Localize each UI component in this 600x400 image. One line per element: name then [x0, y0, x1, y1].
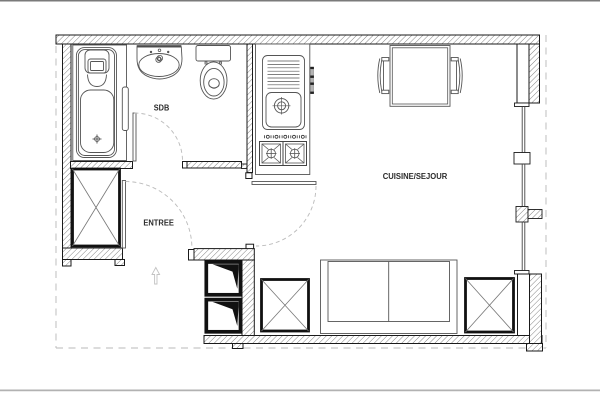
svg-text:ENTREE: ENTREE: [143, 217, 174, 227]
svg-text:SDB: SDB: [154, 102, 170, 112]
svg-text:CUISINE/SEJOUR: CUISINE/SEJOUR: [383, 171, 448, 181]
